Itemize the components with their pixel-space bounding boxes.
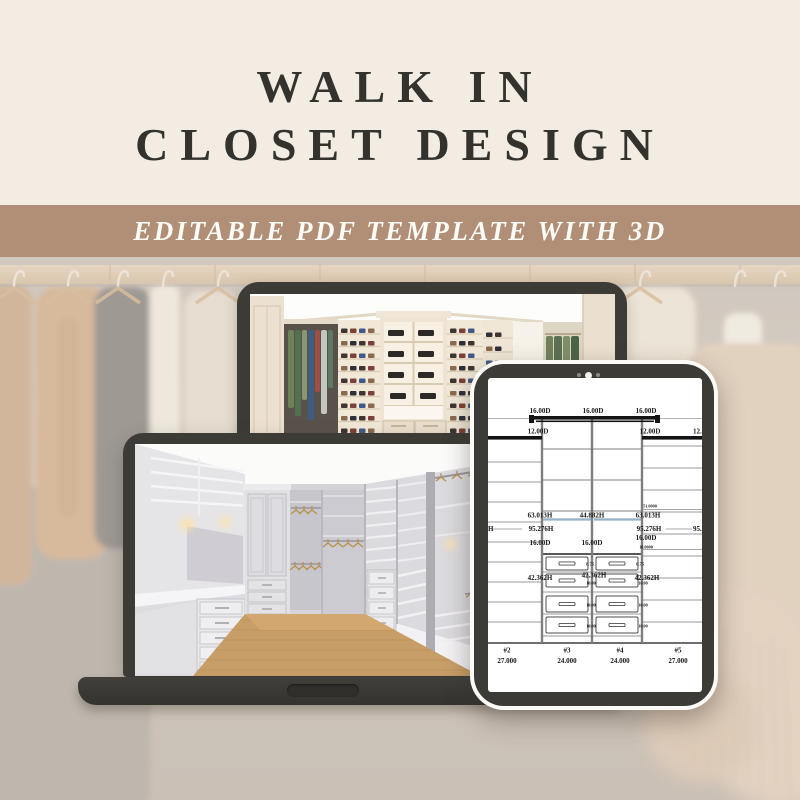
svg-text:16.00D: 16.00D — [583, 407, 604, 415]
subtitle-banner: EDITABLE PDF TEMPLATE WITH 3D — [0, 205, 800, 257]
page-title-line2: CLOSET DESIGN — [0, 116, 800, 174]
closet-elevation-drawing: 16.00D16.00D16.00D12.00D12.00D12.051.000… — [488, 378, 702, 692]
svg-text:10.00: 10.00 — [638, 581, 647, 586]
svg-text:16.00D: 16.00D — [530, 539, 551, 547]
svg-text:44.882H: 44.882H — [580, 512, 605, 520]
page-title-line1: WALK IN — [0, 58, 800, 116]
svg-text:12.00D: 12.00D — [640, 428, 661, 436]
subtitle-banner-label: EDITABLE PDF TEMPLATE WITH 3D — [133, 216, 667, 247]
tablet-mockup: 16.00D16.00D16.00D12.00D12.00D12.051.000… — [470, 360, 718, 710]
svg-text:#3: #3 — [564, 647, 572, 655]
svg-text:63.013H: 63.013H — [636, 512, 661, 520]
title-block: WALK IN CLOSET DESIGN — [0, 58, 800, 174]
svg-text:8.75: 8.75 — [586, 562, 595, 567]
svg-text:12.0: 12.0 — [693, 428, 702, 436]
svg-text:#4: #4 — [617, 647, 625, 655]
svg-text:16.00D: 16.00D — [582, 539, 603, 547]
svg-text:16.00D: 16.00D — [636, 534, 657, 542]
svg-text:H: H — [488, 525, 494, 533]
svg-text:10.00: 10.00 — [586, 581, 595, 586]
tablet-camera-icon — [596, 373, 600, 377]
svg-text:95.2: 95.2 — [693, 525, 702, 533]
svg-text:#2: #2 — [504, 647, 512, 655]
svg-text:8.75: 8.75 — [636, 562, 645, 567]
svg-text:18.0000: 18.0000 — [639, 545, 653, 550]
svg-text:51.0000: 51.0000 — [643, 504, 657, 509]
svg-text:10.00: 10.00 — [638, 624, 647, 629]
svg-text:27.000: 27.000 — [668, 657, 688, 665]
svg-text:42.362H: 42.362H — [528, 574, 553, 582]
svg-text:24.000: 24.000 — [610, 657, 630, 665]
svg-text:16.00D: 16.00D — [530, 407, 551, 415]
svg-text:10.00: 10.00 — [586, 624, 595, 629]
svg-text:12.00D: 12.00D — [528, 428, 549, 436]
svg-text:16.00D: 16.00D — [636, 407, 657, 415]
svg-text:63.013H: 63.013H — [528, 512, 553, 520]
laptop-base-notch — [287, 684, 359, 697]
tablet-camera-icon — [577, 373, 581, 377]
closet-elevation-drawing-svg: 16.00D16.00D16.00D12.00D12.00D12.051.000… — [488, 378, 702, 692]
svg-text:95.276H: 95.276H — [529, 525, 554, 533]
svg-text:10.00: 10.00 — [638, 603, 647, 608]
svg-text:42.362H: 42.362H — [582, 572, 607, 580]
svg-text:27.000: 27.000 — [497, 657, 517, 665]
svg-text:24.000: 24.000 — [557, 657, 577, 665]
product-hero: WALK IN CLOSET DESIGN EDITABLE PDF TEMPL… — [0, 0, 800, 800]
svg-text:#5: #5 — [675, 647, 683, 655]
svg-text:95.276H: 95.276H — [637, 525, 662, 533]
svg-text:10.00: 10.00 — [586, 603, 595, 608]
